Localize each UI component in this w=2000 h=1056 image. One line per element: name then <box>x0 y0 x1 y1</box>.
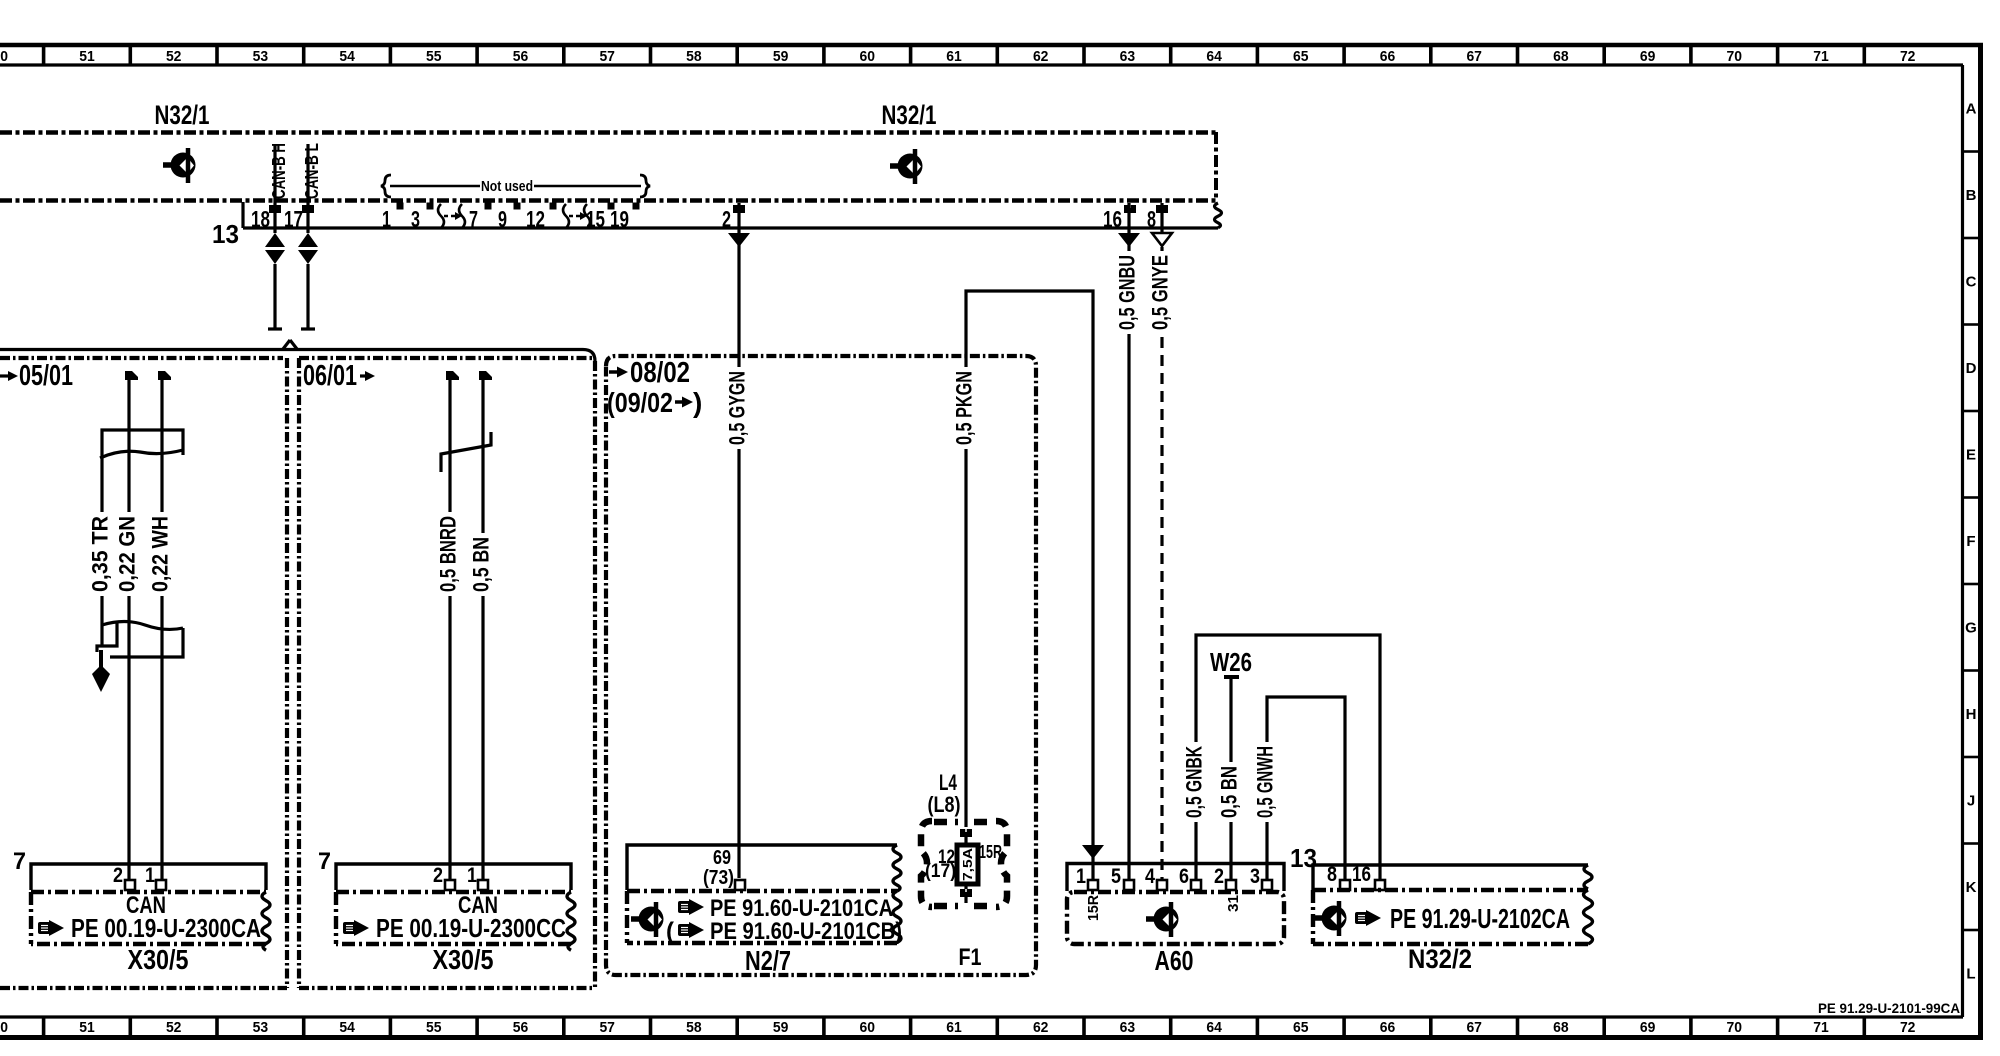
svg-text:12: 12 <box>526 206 545 232</box>
svg-text:15: 15 <box>586 206 605 232</box>
svg-text:15R: 15R <box>1085 895 1102 921</box>
svg-text:50: 50 <box>0 48 8 65</box>
svg-text:1: 1 <box>1076 865 1086 888</box>
svg-text:61: 61 <box>946 1019 962 1036</box>
svg-text:15R: 15R <box>979 842 1002 862</box>
svg-text:0,22 GN: 0,22 GN <box>115 516 140 592</box>
svg-text:A: A <box>1966 101 1977 118</box>
svg-text:63: 63 <box>1120 1019 1136 1036</box>
svg-text:55: 55 <box>426 48 442 65</box>
svg-text:L: L <box>1966 966 1975 983</box>
svg-text:0,22 WH: 0,22 WH <box>148 516 173 592</box>
svg-text:58: 58 <box>686 48 702 65</box>
svg-text:62: 62 <box>1033 48 1049 65</box>
svg-text:57: 57 <box>599 48 615 65</box>
svg-text:7: 7 <box>469 206 478 232</box>
svg-text:PE 91.29-U-2101-99CA: PE 91.29-U-2101-99CA <box>1818 1000 1960 1016</box>
svg-text:F: F <box>1966 533 1975 550</box>
svg-text:58: 58 <box>686 1019 702 1036</box>
svg-text:06/01: 06/01 <box>303 360 357 392</box>
svg-text:G: G <box>1965 620 1977 637</box>
svg-text:0,5 BNRD: 0,5 BNRD <box>436 516 461 592</box>
svg-text:51: 51 <box>79 48 95 65</box>
svg-text:61: 61 <box>946 48 962 65</box>
svg-text:D: D <box>1966 360 1977 377</box>
svg-text:1: 1 <box>382 206 391 232</box>
svg-text:62: 62 <box>1033 1019 1049 1036</box>
svg-text:65: 65 <box>1293 1019 1309 1036</box>
svg-text:(73): (73) <box>703 867 734 889</box>
svg-text:Not used: Not used <box>481 178 533 195</box>
svg-text:59: 59 <box>773 48 789 65</box>
svg-text:0,5 BN: 0,5 BN <box>1217 766 1242 818</box>
svg-text:5: 5 <box>1111 865 1121 888</box>
svg-text:B: B <box>1966 187 1977 204</box>
svg-text:F1: F1 <box>959 944 982 971</box>
svg-text:08/02: 08/02 <box>630 357 690 389</box>
svg-text:71: 71 <box>1813 48 1829 65</box>
svg-text:68: 68 <box>1553 48 1569 65</box>
svg-text:(: ( <box>666 918 674 945</box>
svg-text:69: 69 <box>713 847 731 869</box>
svg-text:59: 59 <box>773 1019 789 1036</box>
svg-text:N32/1: N32/1 <box>155 100 210 130</box>
svg-text:71: 71 <box>1813 1019 1829 1036</box>
svg-text:16: 16 <box>1352 863 1371 886</box>
svg-text:55: 55 <box>426 1019 442 1036</box>
svg-text:8: 8 <box>1147 206 1156 232</box>
svg-text:0,5 GNBU: 0,5 GNBU <box>1115 255 1140 330</box>
svg-text:13: 13 <box>212 219 239 249</box>
svg-text:65: 65 <box>1293 48 1309 65</box>
svg-text:70: 70 <box>1727 48 1743 65</box>
svg-text:CAN-B H: CAN-B H <box>269 143 289 199</box>
svg-text:31: 31 <box>1225 895 1242 912</box>
svg-text:PE 00.19-U-2300CC: PE 00.19-U-2300CC <box>376 913 566 943</box>
svg-text:72: 72 <box>1900 1019 1916 1036</box>
svg-text:7,5A: 7,5A <box>960 847 975 881</box>
svg-text:2: 2 <box>1214 865 1224 888</box>
svg-text:16: 16 <box>1103 206 1122 232</box>
svg-text:68: 68 <box>1553 1019 1569 1036</box>
svg-text:66: 66 <box>1380 1019 1396 1036</box>
svg-text:50: 50 <box>0 1019 8 1036</box>
svg-text:C: C <box>1966 274 1977 291</box>
svg-text:0,5 GYGN: 0,5 GYGN <box>725 371 750 445</box>
svg-text:2: 2 <box>722 206 731 232</box>
svg-text:63: 63 <box>1120 48 1136 65</box>
svg-text:X30/5: X30/5 <box>128 944 189 975</box>
svg-text:19: 19 <box>610 206 629 232</box>
svg-text:J: J <box>1967 793 1975 810</box>
svg-text:66: 66 <box>1380 48 1396 65</box>
svg-text:4: 4 <box>1145 865 1155 888</box>
svg-text:N32/1: N32/1 <box>882 100 937 130</box>
svg-text:X30/5: X30/5 <box>433 944 494 975</box>
svg-text:H: H <box>1966 706 1977 723</box>
svg-text:13: 13 <box>1290 843 1317 873</box>
svg-text:1: 1 <box>467 864 477 887</box>
svg-text:8: 8 <box>1327 863 1337 886</box>
svg-text:9: 9 <box>498 206 507 232</box>
svg-text:57: 57 <box>599 1019 615 1036</box>
svg-text:K: K <box>1966 879 1977 896</box>
svg-text:W26: W26 <box>1210 647 1252 677</box>
svg-text:N32/2: N32/2 <box>1408 944 1472 974</box>
svg-text:(L8): (L8) <box>928 792 961 817</box>
svg-text:69: 69 <box>1640 48 1656 65</box>
svg-text:60: 60 <box>860 1019 876 1036</box>
svg-text:0,35 TR: 0,35 TR <box>88 516 113 592</box>
svg-text:60: 60 <box>860 48 876 65</box>
svg-text:PE 00.19-U-2300CA: PE 00.19-U-2300CA <box>71 913 261 943</box>
svg-text:N2/7: N2/7 <box>745 945 791 976</box>
svg-text:52: 52 <box>166 48 182 65</box>
svg-text:7: 7 <box>318 848 331 875</box>
svg-text:17: 17 <box>284 206 303 232</box>
svg-text:PE 91.60-U-2101CB): PE 91.60-U-2101CB) <box>710 918 902 945</box>
svg-text:64: 64 <box>1206 48 1222 65</box>
svg-text:54: 54 <box>339 1019 355 1036</box>
svg-text:3: 3 <box>1250 865 1260 888</box>
svg-text:3: 3 <box>411 206 420 232</box>
svg-text:A60: A60 <box>1155 945 1194 976</box>
svg-text:CAN-B L: CAN-B L <box>302 143 322 199</box>
svg-text:70: 70 <box>1727 1019 1743 1036</box>
svg-text:72: 72 <box>1900 48 1916 65</box>
svg-text:69: 69 <box>1640 1019 1656 1036</box>
svg-text:18: 18 <box>251 206 270 232</box>
svg-text:53: 53 <box>253 1019 269 1036</box>
svg-text:52: 52 <box>166 1019 182 1036</box>
svg-text:64: 64 <box>1206 1019 1222 1036</box>
svg-text:0,5 GNYE: 0,5 GNYE <box>1148 255 1173 330</box>
svg-text:56: 56 <box>513 48 529 65</box>
svg-text:(09/02: (09/02 <box>607 387 673 418</box>
svg-text:05/01: 05/01 <box>19 360 73 392</box>
svg-text:54: 54 <box>339 48 355 65</box>
svg-text:67: 67 <box>1466 1019 1482 1036</box>
svg-text:2: 2 <box>433 864 443 887</box>
svg-text:56: 56 <box>513 1019 529 1036</box>
svg-text:51: 51 <box>79 1019 95 1036</box>
svg-text:0,5 PKGN: 0,5 PKGN <box>952 371 977 445</box>
svg-text:E: E <box>1966 447 1976 464</box>
svg-text:0,5 BN: 0,5 BN <box>469 537 494 592</box>
svg-text:6: 6 <box>1179 865 1189 888</box>
svg-text:1: 1 <box>145 864 155 887</box>
svg-text:53: 53 <box>253 48 269 65</box>
svg-text:67: 67 <box>1466 48 1482 65</box>
svg-text:7: 7 <box>13 848 26 875</box>
svg-text:PE 91.29-U-2102CA: PE 91.29-U-2102CA <box>1390 903 1570 934</box>
svg-text:(17): (17) <box>925 861 956 882</box>
svg-text:2: 2 <box>113 864 123 887</box>
svg-text:0,5 GNWH: 0,5 GNWH <box>1253 746 1278 818</box>
svg-text:): ) <box>693 387 702 418</box>
svg-text:0,5 GNBK: 0,5 GNBK <box>1182 746 1207 818</box>
